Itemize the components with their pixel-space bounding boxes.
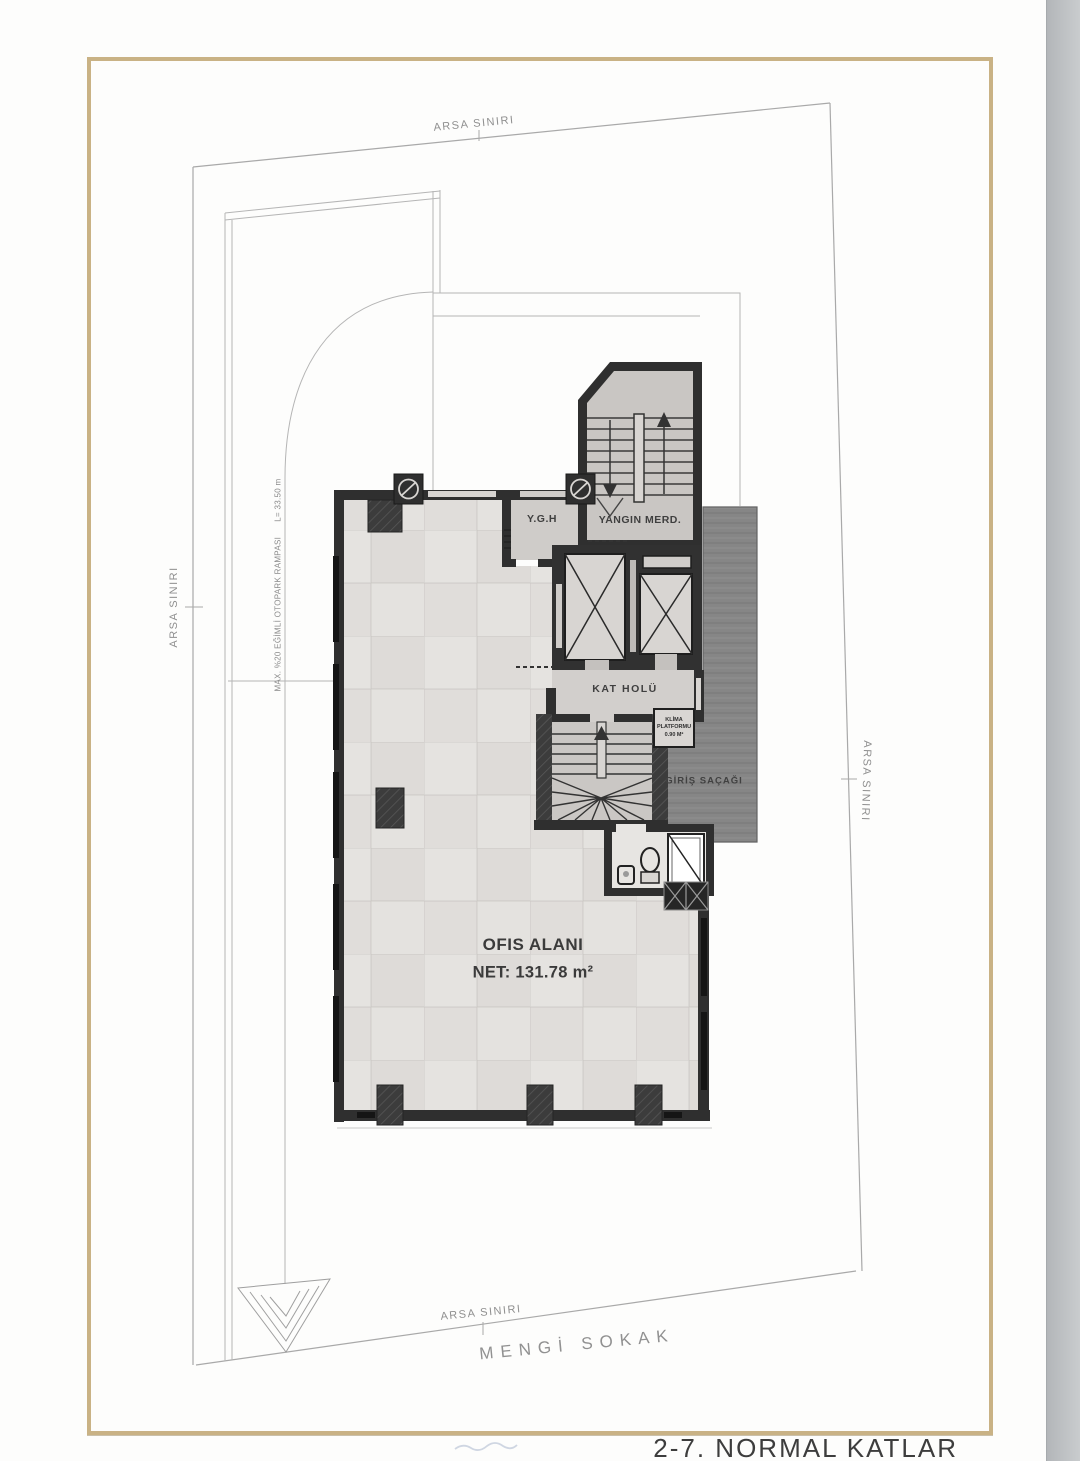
ac-platform-line3: 0.90 M² bbox=[665, 732, 684, 739]
ygh-room-label: Y.G.H bbox=[527, 513, 557, 525]
floor-hall-label: KAT HOLÜ bbox=[592, 683, 657, 695]
page-edge-strip bbox=[1046, 0, 1080, 1461]
drawing-title: 2-7. NORMAL KATLAR bbox=[653, 1433, 958, 1461]
ac-platform-line1: KLİMA bbox=[665, 717, 682, 724]
faint-watermark bbox=[455, 1443, 517, 1450]
fire-stair-label: YANGIN MERD. bbox=[599, 514, 682, 526]
parking-ramp-label: MAX. %20 EĞİMLİ OTOPARK RAMPASI L= 33.50… bbox=[274, 478, 283, 691]
ac-platform-box: KLİMA PLATFORMU 0.90 M² bbox=[653, 708, 695, 748]
boundary-label-right: ARSA SINIRI bbox=[859, 740, 873, 822]
office-net-area-value: NET: 131.78 m² bbox=[473, 964, 594, 983]
gold-border-frame bbox=[87, 57, 993, 1435]
ac-platform-line2: PLATFORMU bbox=[657, 724, 691, 731]
boundary-label-left: ARSA SINIRI bbox=[168, 566, 180, 647]
floor-plan-page: ARSA SINIRI ARSA SINIRI ARSA SINIRI ARSA… bbox=[0, 0, 1080, 1461]
entrance-canopy-label: GİRİŞ SAÇAĞI bbox=[665, 776, 742, 787]
office-area-label: OFIS ALANI bbox=[483, 935, 584, 955]
